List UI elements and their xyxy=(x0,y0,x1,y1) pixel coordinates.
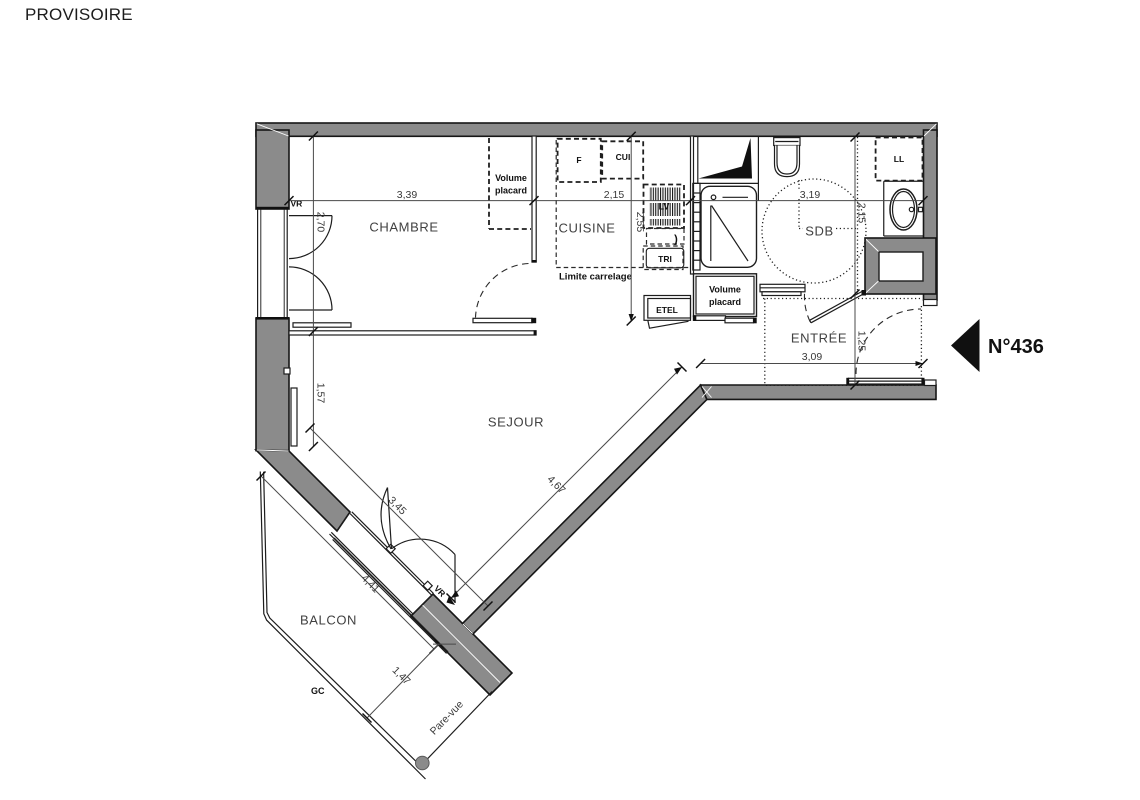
svg-text:LL: LL xyxy=(894,154,904,164)
svg-text:placard: placard xyxy=(709,297,741,307)
svg-text:TRI: TRI xyxy=(658,254,672,264)
svg-text:4,41: 4,41 xyxy=(359,572,382,595)
svg-text:placard: placard xyxy=(495,186,527,196)
svg-text:1,25: 1,25 xyxy=(856,331,868,352)
svg-text:4,67: 4,67 xyxy=(545,473,568,496)
svg-text:PROVISOIRE: PROVISOIRE xyxy=(25,5,133,24)
svg-text:Pare-vue: Pare-vue xyxy=(428,698,466,737)
svg-text:ENTRÉE: ENTRÉE xyxy=(791,331,847,346)
svg-text:N°436: N°436 xyxy=(988,336,1044,358)
svg-text:CHAMBRE: CHAMBRE xyxy=(369,220,438,235)
svg-text:ETEL: ETEL xyxy=(656,305,678,315)
svg-text:2,15: 2,15 xyxy=(604,189,625,201)
svg-text:GC: GC xyxy=(311,686,325,696)
svg-text:CUI: CUI xyxy=(616,152,631,162)
svg-text:2,55: 2,55 xyxy=(634,212,646,233)
svg-text:3,09: 3,09 xyxy=(802,351,823,363)
svg-text:CUISINE: CUISINE xyxy=(559,221,616,236)
svg-text:3,39: 3,39 xyxy=(397,189,418,201)
svg-text:BALCON: BALCON xyxy=(300,613,357,628)
svg-text:Limite carrelage: Limite carrelage xyxy=(559,272,632,283)
svg-text:3,19: 3,19 xyxy=(800,189,821,201)
svg-text:SDB: SDB xyxy=(805,224,834,239)
svg-text:F: F xyxy=(576,155,581,165)
svg-text:Volume: Volume xyxy=(495,173,527,183)
svg-text:): ) xyxy=(674,234,678,246)
svg-text:1,57: 1,57 xyxy=(315,383,327,404)
svg-text:Volume: Volume xyxy=(709,285,741,295)
svg-text:VR: VR xyxy=(291,199,303,209)
svg-text:SEJOUR: SEJOUR xyxy=(488,415,544,430)
svg-text:1,47: 1,47 xyxy=(390,664,413,687)
svg-text:2,15: 2,15 xyxy=(856,203,868,224)
svg-text:2,70: 2,70 xyxy=(315,212,327,233)
